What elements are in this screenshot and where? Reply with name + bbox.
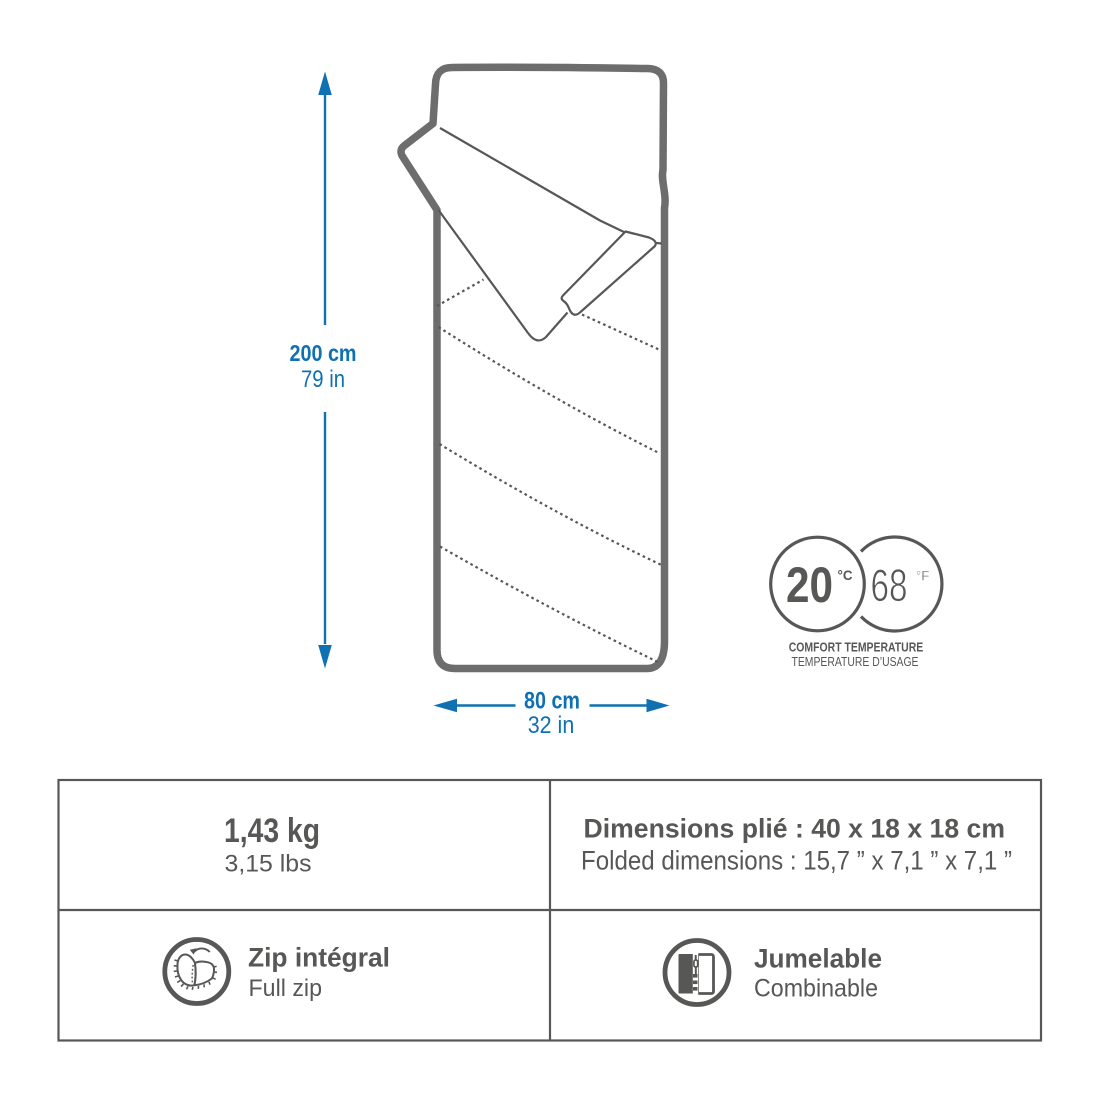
svg-text:COMFORT TEMPERATURE: COMFORT TEMPERATURE	[789, 641, 924, 655]
svg-text:Zip intégral: Zip intégral	[248, 943, 390, 973]
svg-text:°F: °F	[916, 568, 930, 584]
svg-text:68: 68	[871, 560, 908, 611]
svg-text:1,43 kg: 1,43 kg	[224, 812, 320, 850]
svg-text:3,15 lbs: 3,15 lbs	[225, 851, 312, 878]
svg-text:Jumelable: Jumelable	[754, 944, 882, 974]
svg-text:200 cm: 200 cm	[290, 340, 357, 366]
svg-text:Full zip: Full zip	[249, 975, 323, 1002]
svg-text:Dimensions plié : 40 x 18 x 18: Dimensions plié : 40 x 18 x 18 cm	[584, 814, 1006, 844]
svg-text:79 in: 79 in	[301, 366, 345, 393]
svg-text:°C: °C	[838, 567, 853, 583]
svg-text:TEMPERATURE D’USAGE: TEMPERATURE D’USAGE	[792, 654, 919, 669]
svg-text:Folded dimensions : 15,7 ” x 7: Folded dimensions : 15,7 ” x 7,1 ” x 7,1…	[581, 846, 1012, 876]
svg-text:Combinable: Combinable	[754, 975, 878, 1003]
svg-text:80 cm: 80 cm	[524, 688, 580, 715]
svg-text:32 in: 32 in	[528, 712, 575, 739]
svg-text:20: 20	[786, 556, 833, 613]
